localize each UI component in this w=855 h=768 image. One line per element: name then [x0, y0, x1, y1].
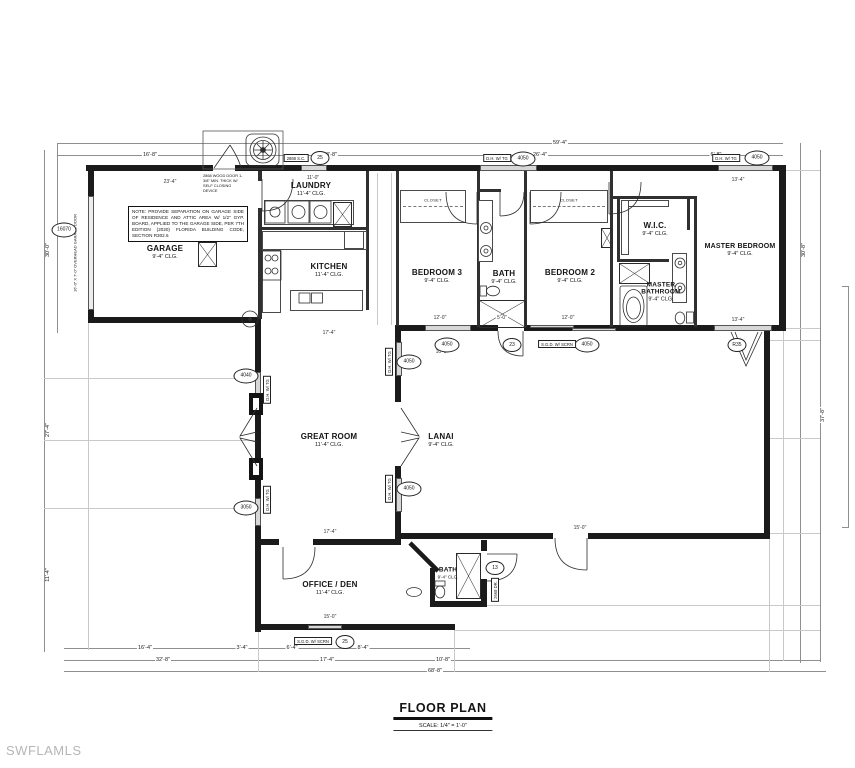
garage-separation-note: NOTE: PROVIDE SEPARATION ON GARAGE SIDE …	[128, 206, 248, 242]
dimension: 3'-4"	[236, 645, 249, 651]
room-name: LANAI	[428, 432, 453, 441]
window-label: D.H. W/ TG	[263, 486, 271, 514]
room-name: GARAGE	[147, 244, 183, 253]
door-label: 2668 DR.	[491, 578, 499, 602]
window-tag: 4050	[435, 338, 460, 353]
room-label-master-bedroom: MASTER BEDROOM 9'-4" CLG.	[705, 243, 776, 257]
door-tag: 23	[503, 338, 522, 352]
room-label-laundry: LAUNDRY 11'-4" CLG.	[291, 181, 331, 197]
dimension: 59'-4"	[552, 140, 568, 146]
door-swing	[214, 145, 641, 581]
window-tag: 4050	[511, 152, 536, 167]
laundry-fixtures	[265, 201, 331, 223]
room-ceiling: 9'-4" CLG.	[438, 575, 459, 580]
room-ceiling: 9'-4" CLG.	[147, 254, 183, 260]
door-tag: 25	[311, 151, 330, 165]
dimension: 17'-4"	[322, 330, 337, 336]
window-label: D.H. W/ TG	[385, 475, 393, 503]
room-ceiling: 9'-4" CLG.	[642, 231, 667, 237]
dimension: 16'-4"	[137, 645, 153, 651]
room-ceiling: 11'-4" CLG.	[291, 191, 331, 197]
dimension: 13'-4"	[731, 177, 746, 183]
room-label-office-den: OFFICE / DEN 11'-4" CLG.	[302, 580, 357, 596]
window-label: D.H. W/ TG	[263, 376, 271, 404]
room-label-bedroom3: BEDROOM 3 9'-4" CLG.	[412, 268, 462, 284]
title-block: FLOOR PLAN SCALE: 1/4" = 1'-0"	[393, 699, 492, 731]
dimension: 15'-0"	[323, 614, 338, 620]
door-tag: 25	[336, 635, 355, 649]
window-tag: 4050	[397, 482, 422, 497]
room-name: KITCHEN	[311, 262, 348, 271]
door-label: S.G.D. W/ SCRN	[294, 637, 332, 645]
window-tag: R35	[728, 338, 747, 352]
room-ceiling: 9'-4" CLG.	[634, 297, 688, 303]
window-tag: 4040	[234, 369, 259, 384]
room-name: LAUNDRY	[291, 181, 331, 190]
dimension: 32'-8"	[155, 657, 171, 663]
dimension: 17'-4"	[323, 529, 338, 535]
dimension: 11'-4"	[45, 567, 51, 583]
room-name: BATH	[491, 269, 516, 278]
closet-label: CLOSET	[424, 198, 442, 203]
window-tag: 4050	[397, 355, 422, 370]
dimension: 37'-8"	[820, 407, 826, 423]
dimension: 8'-4"	[357, 645, 370, 651]
room-label-great-room: GREAT ROOM 11'-4" CLG.	[301, 432, 358, 448]
dimension: 10'-8"	[435, 657, 451, 663]
floor-plan-sheet: GARAGE 9'-4" CLG. LAUNDRY 11'-4" CLG. KI…	[0, 0, 855, 768]
room-ceiling: 9'-4" CLG.	[428, 442, 453, 448]
window-label: D.H. W/ TG	[712, 154, 740, 162]
chamfer-wall	[410, 543, 438, 571]
room-ceiling: 9'-4" CLG.	[705, 251, 776, 257]
window-label: S.G.D. W/ SCRN	[538, 340, 576, 348]
door-note: 2868 WOOD DOOR 1-3/8" MIN. THICK W/ SELF…	[203, 174, 243, 194]
room-label-pool-bath: BATH 9'-4" CLG.	[438, 567, 459, 580]
room-ceiling: 11'-4" CLG.	[301, 442, 358, 448]
dimension: 12'-0"	[561, 315, 576, 321]
dimension: 5'-0"	[496, 315, 508, 321]
room-name: MASTER BEDROOM	[705, 243, 776, 250]
room-name: GREAT ROOM	[301, 432, 358, 441]
dimension: 17'-4"	[319, 657, 335, 663]
room-ceiling: 11'-4" CLG.	[311, 272, 348, 278]
dimension: 16'-8"	[142, 152, 158, 158]
room-ceiling: 9'-4" CLG.	[412, 278, 462, 284]
dimension: 15'-0"	[573, 525, 588, 531]
room-name: MASTER BATHROOM	[634, 282, 688, 296]
drawing-scale: SCALE: 1/4" = 1'-0"	[393, 723, 492, 731]
room-name: OFFICE / DEN	[302, 580, 357, 589]
closet-label: CLOSET	[560, 198, 578, 203]
garage-door-tag: 16070	[52, 223, 77, 238]
window-tag: 3050	[234, 501, 259, 516]
room-name: BATH	[438, 567, 459, 574]
room-ceiling: 9'-4" CLG.	[491, 279, 516, 285]
room-ceiling: 9'-4" CLG.	[545, 278, 595, 284]
window-label: D.H. W/ TG	[385, 348, 393, 376]
room-label-wic: W.I.C. 9'-4" CLG.	[642, 221, 667, 237]
roof-vent-icon	[203, 131, 283, 169]
room-name: W.I.C.	[642, 221, 667, 230]
drawing-title: FLOOR PLAN	[393, 701, 492, 720]
symbol-overlay	[0, 0, 855, 768]
room-name: BEDROOM 2	[545, 268, 595, 277]
dimension: 6'-4"	[286, 645, 299, 651]
dimension: 68'-8"	[427, 668, 443, 674]
room-label-kitchen: KITCHEN 11'-4" CLG.	[311, 262, 348, 278]
dimension: 30'-0"	[45, 242, 51, 258]
garage-drain	[242, 311, 258, 327]
room-name: BEDROOM 3	[412, 268, 462, 277]
room-label-bedroom2: BEDROOM 2 9'-4" CLG.	[545, 268, 595, 284]
door-tag: 13	[486, 561, 505, 575]
dimension: 13'-4"	[731, 317, 746, 323]
room-label-master-bathroom: MASTER BATHROOM 9'-4" CLG.	[634, 282, 688, 303]
window-label: D.H. W/ TG	[483, 154, 511, 162]
dimension: 27'-4"	[45, 422, 51, 438]
dimension: 12'-0"	[433, 315, 448, 321]
room-ceiling: 11'-4" CLG.	[302, 590, 357, 596]
window-tag: 4050	[575, 338, 600, 353]
room-label-hall-bath: BATH 9'-4" CLG.	[491, 269, 516, 285]
dimension: 23'-4"	[163, 179, 178, 185]
room-label-garage: GARAGE 9'-4" CLG.	[147, 244, 183, 260]
watermark: SWFLAMLS	[6, 743, 82, 758]
door-label: 2868 S.C.	[284, 154, 309, 162]
pool-bath-fixtures	[407, 581, 446, 598]
window-tag: 4050	[745, 151, 770, 166]
dimension: 30'-8"	[801, 242, 807, 258]
room-label-lanai: LANAI 9'-4" CLG.	[428, 432, 453, 448]
